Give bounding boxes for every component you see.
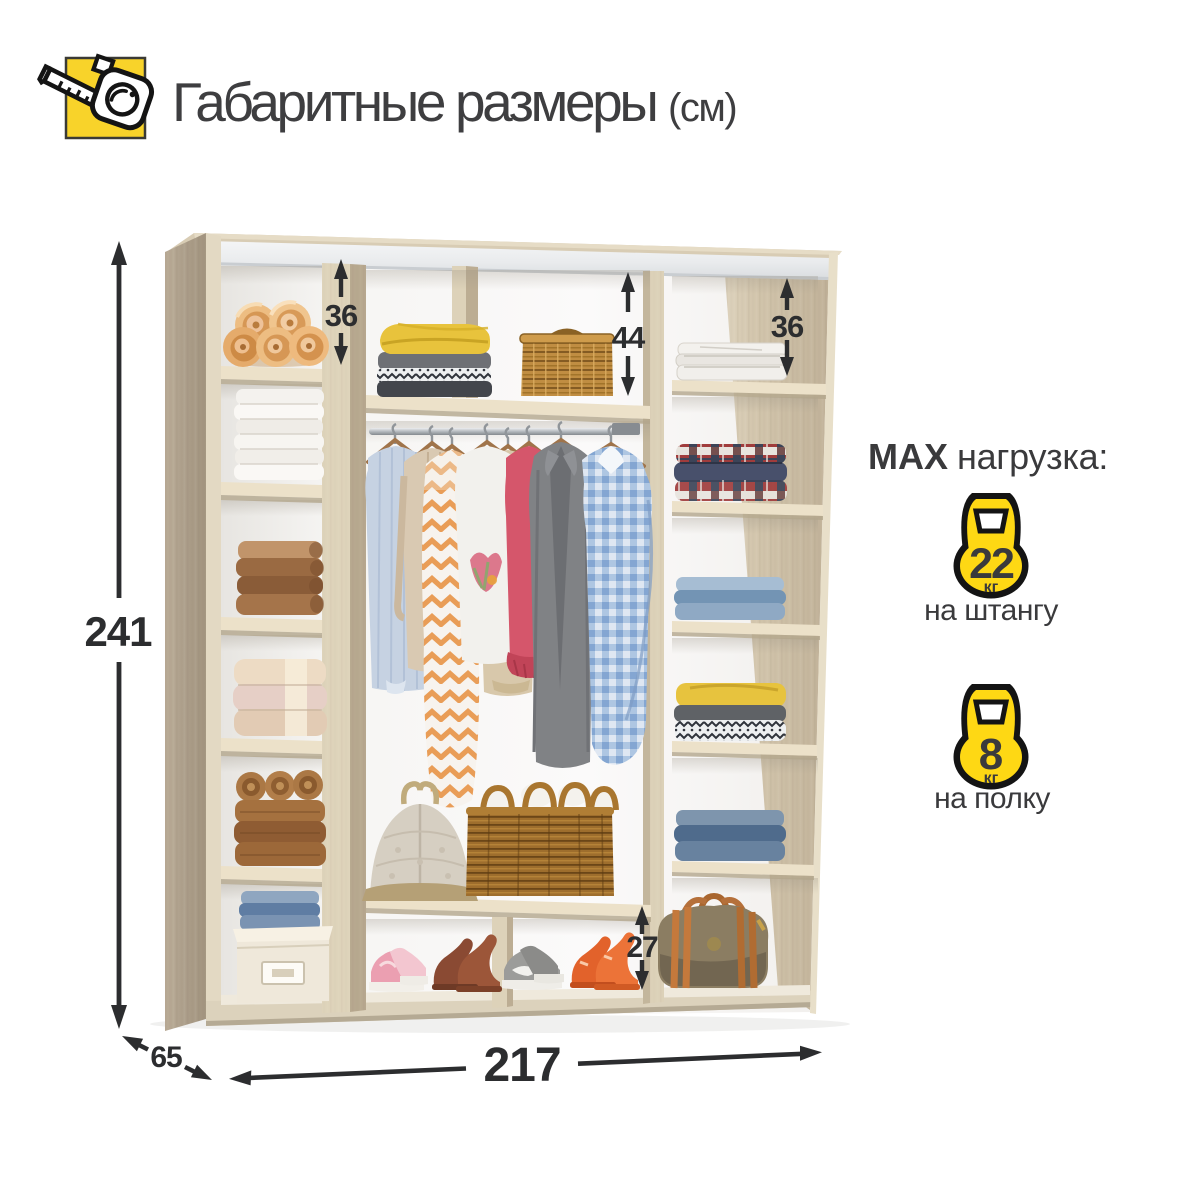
svg-text:MAX: MAX xyxy=(868,436,948,477)
svg-text:27: 27 xyxy=(626,931,658,964)
svg-text:241: 241 xyxy=(84,608,152,655)
svg-text:(см): (см) xyxy=(668,86,736,130)
svg-text:217: 217 xyxy=(483,1039,560,1092)
svg-text:44: 44 xyxy=(612,320,646,355)
svg-text:на штангу: на штангу xyxy=(924,594,1058,627)
svg-text:Габаритные размеры: Габаритные размеры xyxy=(172,71,655,133)
svg-text:65: 65 xyxy=(150,1041,182,1074)
svg-text:36: 36 xyxy=(771,309,804,344)
svg-text:на полку: на полку xyxy=(934,782,1050,815)
svg-text:36: 36 xyxy=(325,298,358,333)
svg-text:нагрузка:: нагрузка: xyxy=(957,436,1108,477)
